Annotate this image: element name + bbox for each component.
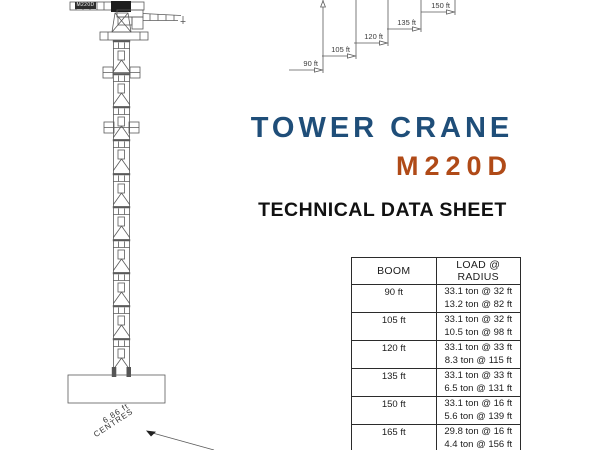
page-subtitle: TECHNICAL DATA SHEET [247,199,518,222]
table-header-row: BOOM LOAD @ RADIUS [352,258,521,285]
foundation-base [68,367,165,403]
boom-cell: 105 ft [352,313,437,341]
load-line: 33.1 ton @ 32 ft [437,313,521,326]
boom-cell: 135 ft [352,369,437,397]
mast [113,40,130,372]
load-line: 13.2 ton @ 82 ft [437,298,521,311]
boom-cell: 120 ft [352,341,437,369]
table-row: 105 ft 33.1 ton @ 32 ft 10.5 ton @ 98 ft [352,313,521,341]
boom-cell: 90 ft [352,285,437,313]
jib-length-label: 105 ft [306,45,350,54]
table-row: 90 ft 33.1 ton @ 32 ft 13.2 ton @ 82 ft [352,285,521,313]
load-cell: 33.1 ton @ 32 ft 13.2 ton @ 82 ft [436,285,521,313]
table-row: 120 ft 33.1 ton @ 33 ft 8.3 ton @ 115 ft [352,341,521,369]
load-line: 33.1 ton @ 33 ft [437,341,521,354]
jib-length-label: 90 ft [274,59,318,68]
load-cell: 33.1 ton @ 32 ft 10.5 ton @ 98 ft [436,313,521,341]
jib-length-label: 120 ft [339,32,383,41]
load-cell: 33.1 ton @ 33 ft 8.3 ton @ 115 ft [436,341,521,369]
load-line: 4.4 ton @ 156 ft [437,438,521,450]
table-row: 165 ft 29.8 ton @ 16 ft 4.4 ton @ 156 ft [352,425,521,450]
boom-cell: 165 ft [352,425,437,450]
load-column-header: LOAD @ RADIUS [436,258,521,285]
crane-model-chip: M220D [75,2,96,9]
load-line: 8.3 ton @ 115 ft [437,354,521,367]
model-title: M220D [250,151,513,182]
jib-stub [143,14,186,25]
boom-cell: 150 ft [352,397,437,425]
load-line: 33.1 ton @ 33 ft [437,369,521,382]
load-radius-table: BOOM LOAD @ RADIUS 90 ft 33.1 ton @ 32 f… [351,257,521,450]
table-row: 150 ft 33.1 ton @ 16 ft 5.6 ton @ 139 ft [352,397,521,425]
load-line: 10.5 ton @ 98 ft [437,326,521,339]
load-line: 33.1 ton @ 16 ft [437,397,521,410]
table-row: 135 ft 33.1 ton @ 33 ft 6.5 ton @ 131 ft [352,369,521,397]
load-line: 29.8 ton @ 16 ft [437,425,521,438]
load-line: 33.1 ton @ 32 ft [437,285,521,298]
centres-leader-arrow [146,431,214,450]
boom-column-header: BOOM [352,258,437,285]
load-cell: 29.8 ton @ 16 ft 4.4 ton @ 156 ft [436,425,521,450]
load-cell: 33.1 ton @ 33 ft 6.5 ton @ 131 ft [436,369,521,397]
jib-length-label: 150 ft [406,1,450,10]
load-line: 5.6 ton @ 139 ft [437,410,521,423]
jib-length-label: 135 ft [372,18,416,27]
mast-tie-collars [103,67,140,133]
technical-data-sheet-page: M220D 90 ft 105 ft 120 ft 135 ft 150 ft … [0,0,600,450]
load-cell: 33.1 ton @ 16 ft 5.6 ton @ 139 ft [436,397,521,425]
page-title: TOWER CRANE [248,112,516,145]
load-line: 6.5 ton @ 131 ft [437,382,521,395]
